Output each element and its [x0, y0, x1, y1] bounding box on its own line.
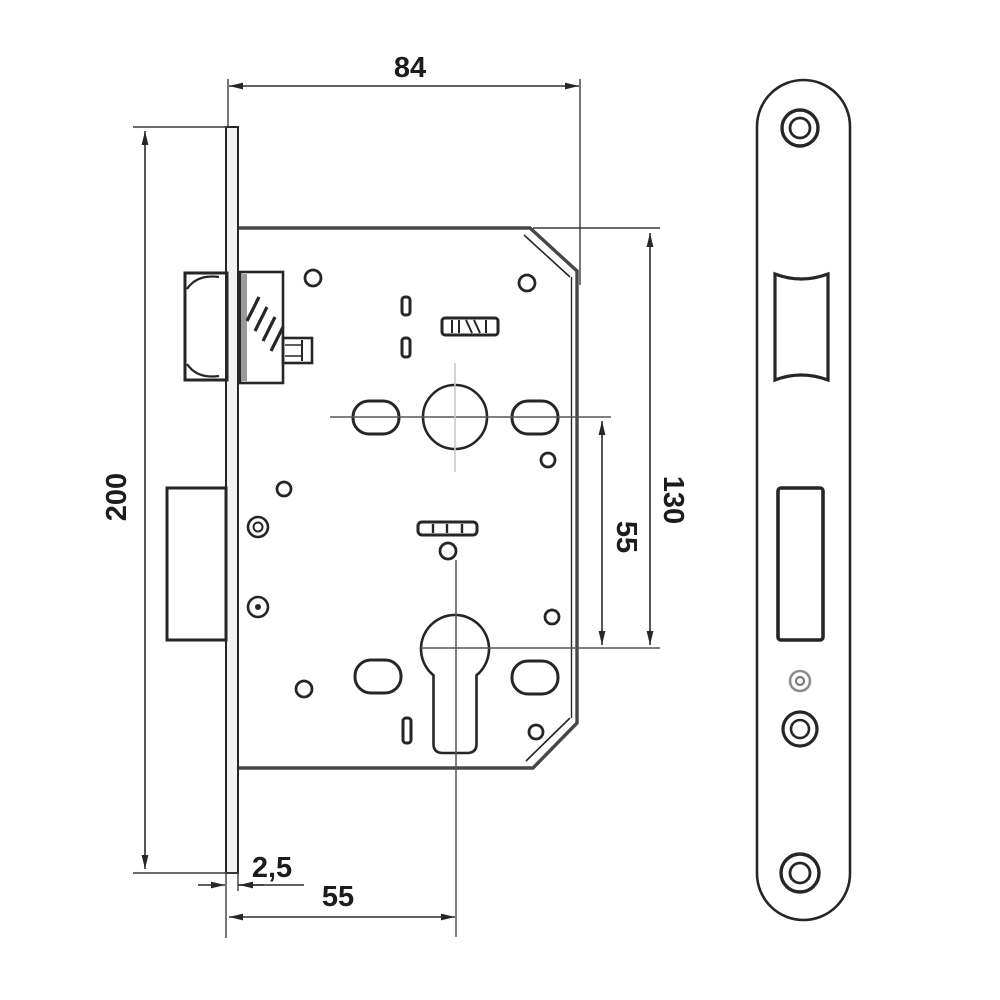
lock-case-outline	[238, 228, 577, 768]
side-view	[167, 127, 660, 937]
screw-hole-top-inner	[790, 118, 810, 138]
dimension-text-84: 84	[394, 52, 426, 84]
dimension-text-2-5: 2,5	[252, 852, 292, 884]
screw-hole-top	[782, 110, 818, 146]
dimension-text-200: 200	[101, 473, 133, 521]
latch-bolt	[185, 273, 227, 380]
mortise-lock-drawing: 84 200 130 55 55 2,5	[0, 0, 1000, 1000]
pivot-post-dot	[255, 604, 261, 610]
deadbolt	[167, 488, 226, 640]
latch-bevel-top	[187, 277, 219, 290]
deadbolt-cutout	[778, 488, 823, 640]
screw-hole-bottom-inner	[790, 863, 810, 883]
dimension-text-130: 130	[657, 476, 689, 524]
screw-hole-middle	[783, 712, 817, 746]
adjustment-hole-inner	[796, 677, 804, 685]
faceplate-side	[226, 127, 238, 873]
screw-hole-middle-inner	[791, 720, 809, 738]
drawing-canvas: 84 200 130 55 55 2,5	[0, 0, 1000, 1000]
screw-hole-bottom	[781, 854, 819, 892]
adjustment-hole	[790, 671, 810, 691]
latch-housing-shading	[241, 274, 247, 381]
faceplate-front-view	[757, 80, 850, 920]
dimension-text-55-vertical: 55	[610, 521, 642, 553]
faceplate-outline	[757, 80, 850, 920]
dimension-text-55-backset: 55	[322, 881, 354, 913]
latch-bevel-bottom	[187, 364, 219, 377]
latch-cutout	[775, 274, 828, 380]
